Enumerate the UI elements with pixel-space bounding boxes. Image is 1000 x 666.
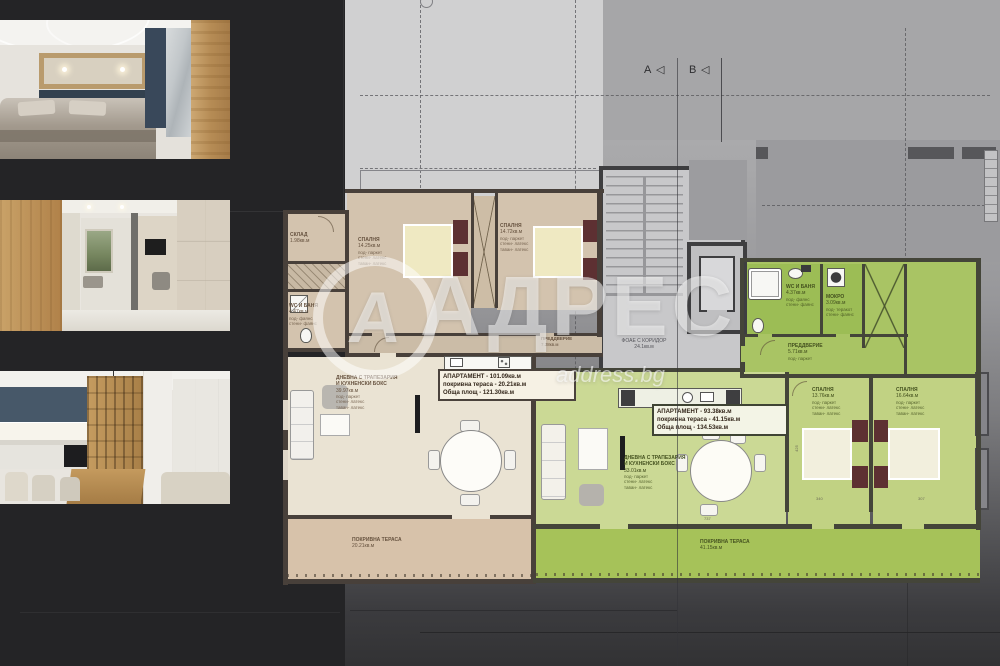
chair-icon bbox=[428, 450, 440, 470]
pillow bbox=[18, 99, 56, 115]
room-label-bedroom1-right: СПАЛНЯ 13.76кв.м под- паркет стени- лате… bbox=[812, 387, 840, 416]
site-line bbox=[907, 583, 908, 666]
wood-panel bbox=[0, 200, 62, 331]
grid-line bbox=[360, 95, 990, 96]
section-arrow-b-icon: ◁ bbox=[701, 63, 709, 76]
backsplash-lit bbox=[0, 422, 87, 441]
wardrobe-navy bbox=[145, 28, 166, 128]
terrace-door-opening bbox=[600, 524, 628, 529]
wall bbox=[283, 210, 288, 585]
chair-icon bbox=[504, 450, 516, 470]
wardrobe-wood bbox=[191, 20, 230, 159]
dimension-label: 425 bbox=[794, 445, 799, 452]
bathtub-icon bbox=[748, 268, 782, 300]
site-line bbox=[420, 632, 1000, 633]
room-label-laundry: МОКРО 3.09кв.м под- теракот стени- фаянс bbox=[826, 294, 854, 318]
room-label-living-left: ДНЕВНА С ТРАПЕЗАРИЯ И КУХНЕНСКИ БОКС 39.… bbox=[336, 375, 397, 411]
terrace-railing bbox=[287, 574, 533, 577]
window-with-trees bbox=[85, 229, 113, 274]
wall bbox=[740, 374, 980, 378]
oven-icon bbox=[64, 445, 87, 466]
chair bbox=[60, 477, 81, 501]
bed-icon bbox=[802, 428, 852, 480]
wall-hatch bbox=[908, 147, 954, 159]
room-label-bath-right: WC И БАНЯ 4.37кв.м под- фаянс стени- фая… bbox=[786, 284, 815, 308]
brand-logo-letter: А bbox=[345, 282, 405, 354]
wardrobe-white bbox=[173, 379, 231, 472]
terrace-door-opening bbox=[902, 524, 924, 529]
door-opening bbox=[758, 334, 772, 337]
chair-silhouette bbox=[152, 272, 170, 290]
sconce-light-icon bbox=[120, 67, 125, 72]
room-label-bedroom2-right: СПАЛНЯ 16.64кв.м под- паркет стени- лате… bbox=[896, 387, 924, 416]
terrace-railing bbox=[536, 573, 980, 576]
bed-headboard bbox=[583, 220, 597, 242]
kitchen-cabinet-icon bbox=[621, 390, 635, 406]
spot-light-icon bbox=[120, 205, 124, 209]
vent-icon bbox=[801, 265, 811, 272]
chair-icon bbox=[460, 494, 480, 506]
wall bbox=[283, 515, 535, 519]
wall-hatch bbox=[756, 147, 768, 159]
section-marker-b: B bbox=[689, 64, 696, 76]
washing-machine-icon bbox=[827, 268, 845, 287]
bed-throw bbox=[0, 130, 156, 143]
grid-line bbox=[762, 205, 990, 206]
stove-icon bbox=[498, 357, 510, 368]
pillow bbox=[69, 100, 106, 116]
bed-headboard bbox=[874, 466, 888, 488]
sofa-icon bbox=[541, 424, 566, 500]
apartment-door-opening bbox=[741, 346, 747, 362]
dimension-label: 737 bbox=[704, 516, 711, 521]
window-opening bbox=[283, 450, 288, 480]
brand-watermark: АДРЕС bbox=[420, 264, 736, 348]
bed-icon bbox=[888, 428, 940, 480]
rug-icon bbox=[578, 428, 608, 470]
site-line bbox=[350, 610, 677, 611]
chair-icon bbox=[754, 454, 766, 472]
tv-icon bbox=[145, 239, 166, 255]
section-marker-a: A bbox=[644, 64, 651, 76]
sofa-silhouette bbox=[83, 276, 104, 288]
dimension-label: 340 bbox=[816, 496, 823, 501]
wall bbox=[869, 378, 873, 512]
room-label-hall-right: ПРЕДДВЕРИЕ 5.71кв.м под- паркет bbox=[788, 343, 823, 361]
section-line-a bbox=[677, 58, 678, 666]
toilet-icon bbox=[300, 328, 312, 343]
wall bbox=[740, 258, 980, 262]
chair bbox=[5, 472, 28, 501]
terrace-label-right: ПОКРИВНА ТЕРАСА 41.15кв.м bbox=[700, 539, 750, 552]
listing-image: A ◁ B ◁ СКЛА bbox=[0, 0, 1000, 666]
apartment-info-box-right: АПАРТАМЕНТ - 93.38кв.м покривна тераса -… bbox=[652, 404, 788, 436]
grid-line bbox=[360, 168, 596, 169]
site-line bbox=[20, 612, 340, 613]
terrace-left bbox=[287, 519, 533, 581]
door-opening bbox=[836, 334, 850, 337]
toilet-icon bbox=[752, 318, 764, 333]
brand-logo: А bbox=[313, 256, 437, 380]
wall bbox=[283, 579, 536, 584]
bed-headboard bbox=[852, 420, 868, 442]
door-frame bbox=[131, 213, 138, 318]
tv-icon bbox=[415, 395, 420, 433]
photo-bedroom-niche bbox=[39, 53, 147, 89]
wall bbox=[904, 264, 907, 374]
chair-icon bbox=[700, 504, 718, 516]
dining-table-icon bbox=[440, 430, 502, 492]
hallway-wall bbox=[62, 213, 80, 311]
core-corner-patch bbox=[689, 160, 747, 240]
terrace-door-opening bbox=[452, 515, 490, 519]
bed-headboard bbox=[852, 466, 868, 488]
wall bbox=[820, 264, 823, 334]
sofa bbox=[161, 472, 230, 504]
chair bbox=[32, 475, 55, 502]
coffee-table-icon bbox=[320, 414, 350, 436]
sofa-icon bbox=[290, 390, 314, 460]
stove-icon bbox=[682, 392, 693, 403]
section-line-b bbox=[721, 58, 722, 142]
section-arrow-a-icon: ◁ bbox=[656, 63, 664, 76]
bed-headboard bbox=[874, 420, 888, 442]
sink-icon bbox=[450, 358, 463, 367]
wall bbox=[976, 258, 981, 530]
wall bbox=[533, 578, 980, 583]
photo-bedroom bbox=[0, 20, 230, 159]
wall bbox=[862, 264, 865, 348]
wall bbox=[283, 210, 349, 214]
window-opening bbox=[283, 400, 288, 430]
photo-hallway bbox=[0, 200, 230, 331]
wall bbox=[285, 261, 347, 264]
wall bbox=[345, 189, 604, 193]
marble-floor bbox=[62, 310, 230, 331]
terrace-door-opening bbox=[812, 524, 834, 529]
legend-table bbox=[984, 150, 998, 222]
terrace-label-left: ПОКРИВНА ТЕРАСА 20.21кв.м bbox=[352, 537, 402, 550]
room-label-storage: СКЛАД 1.98кв.м bbox=[290, 232, 309, 245]
wall bbox=[785, 372, 789, 512]
armchair-icon bbox=[579, 484, 604, 506]
side-room bbox=[138, 216, 177, 310]
upper-cabinets-navy bbox=[0, 387, 87, 422]
sink-icon bbox=[700, 392, 714, 402]
mirror bbox=[166, 28, 191, 136]
dimension-label: 307 bbox=[918, 496, 925, 501]
brand-site: address.bg bbox=[556, 362, 665, 388]
site-line bbox=[343, 0, 344, 211]
bed-headboard bbox=[453, 220, 468, 244]
room-label-bedroom2-left: СПАЛНЯ 14.72кв.м под- паркет стени- лате… bbox=[500, 223, 528, 252]
dining-table-icon bbox=[690, 440, 752, 502]
photo-kitchen bbox=[0, 371, 230, 504]
